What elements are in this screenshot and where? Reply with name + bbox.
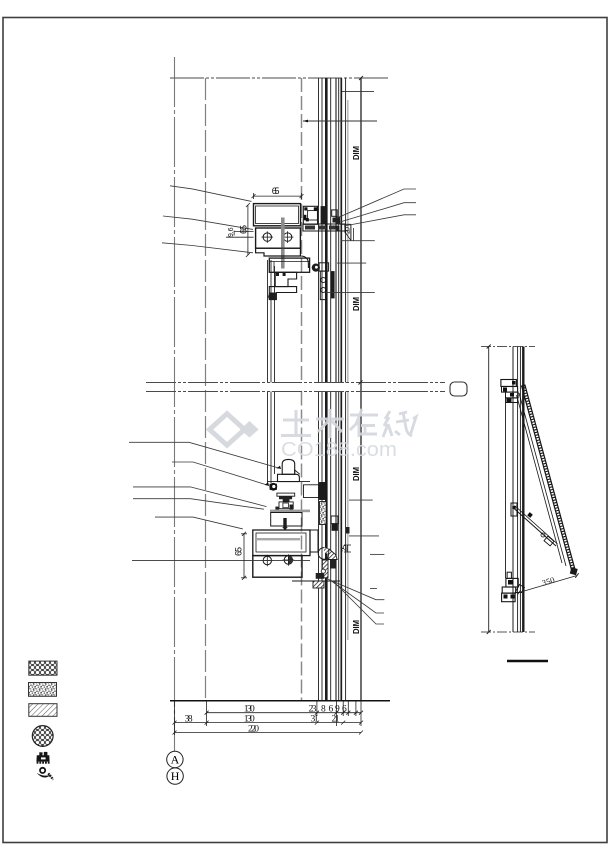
svg-text:23: 23 [309,705,317,715]
svg-text:DIM: DIM [352,297,361,311]
svg-text:65: 65 [239,225,249,234]
svg-text:DIM: DIM [352,467,361,481]
svg-text:A: A [171,753,180,767]
svg-text:25: 25 [340,545,349,552]
svg-text:6: 6 [342,705,347,715]
svg-text:65: 65 [233,547,243,556]
svg-text:21: 21 [332,714,340,724]
svg-text:DIM: DIM [352,620,361,634]
svg-text:350: 350 [541,575,556,588]
svg-text:CO188.com: CO188.com [281,439,397,461]
svg-text:6: 6 [329,705,334,715]
svg-text:65: 65 [272,186,280,196]
svg-text:9: 9 [335,705,340,715]
svg-text:130: 130 [244,705,255,715]
svg-text:8: 8 [321,705,326,715]
svg-text:130: 130 [244,714,255,724]
svg-text:20: 20 [343,227,352,234]
svg-text:DIM: DIM [352,146,361,160]
svg-text:220: 220 [248,724,259,734]
svg-text:31: 31 [311,714,319,724]
svg-text:38: 38 [185,714,193,724]
svg-text:H: H [171,769,180,783]
svg-text:9.6: 9.6 [228,227,235,237]
